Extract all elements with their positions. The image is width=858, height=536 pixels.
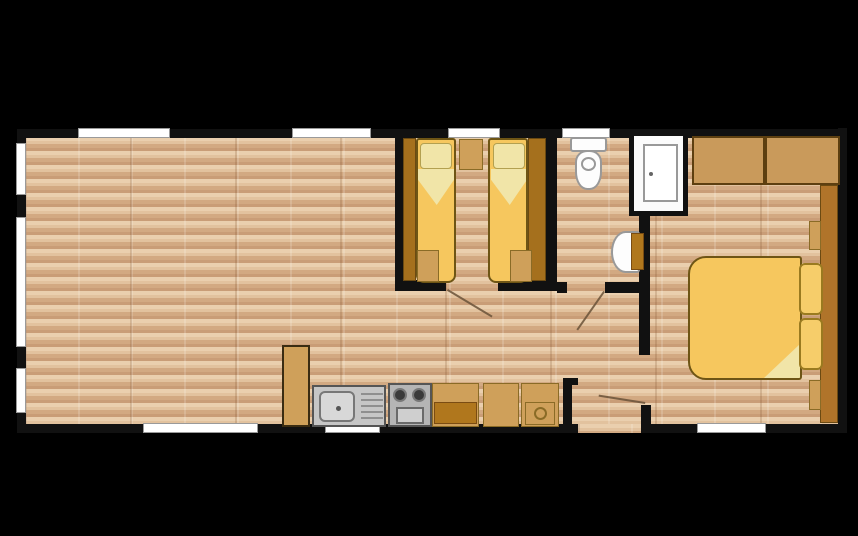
window-left-3 <box>16 368 26 413</box>
kitchen-unit-end-panel <box>525 402 555 425</box>
twin-bed-2-folded-sheet <box>491 169 527 205</box>
sink-drain-hole <box>336 406 341 411</box>
window-lounge-top-1 <box>78 128 170 138</box>
kitchen-unit-plain <box>483 383 519 427</box>
overhead-wardrobe-1 <box>692 136 765 185</box>
floor-plan-canvas <box>0 0 858 536</box>
window-twin-bedroom <box>448 128 500 138</box>
bedside-cabinet <box>459 139 483 170</box>
wall-kitchen-end <box>563 380 572 433</box>
double-bed-duvet <box>688 256 802 380</box>
twin-bed-1-folded-sheet <box>418 169 454 205</box>
twin-bed-1-pillow <box>420 143 452 169</box>
toilet <box>570 137 607 191</box>
twin-bed-2-pillow <box>493 143 525 169</box>
kitchen-unit-end <box>521 383 559 427</box>
wall-twin-shower-divider <box>546 130 557 291</box>
window-double-bedroom <box>697 423 766 433</box>
toilet-seat-detail <box>581 157 596 171</box>
shower-cubicle <box>629 131 688 216</box>
window-lounge-bottom <box>143 423 258 433</box>
cooker <box>388 383 432 427</box>
twin-bed-2-foot-box <box>510 250 532 282</box>
window-left-2 <box>16 217 26 347</box>
shower-door <box>643 144 678 202</box>
double-bed-pillow-top <box>799 263 823 315</box>
bedside-shelf-bottom <box>809 380 821 410</box>
sink-unit <box>312 385 386 427</box>
hob-burner-right <box>412 388 426 402</box>
wall-bedroom-divider-lower <box>641 405 651 433</box>
shower-door-handle <box>649 172 653 176</box>
drainer-ridges <box>361 393 383 421</box>
kitchen-unit-drawer-front <box>434 402 477 424</box>
sink-bowl <box>319 391 355 422</box>
wall-twin-bedroom-left <box>395 130 403 291</box>
tall-larder-unit <box>282 345 310 427</box>
wall-kitchen-end-stub <box>563 378 578 385</box>
twin-bed-1-foot-box <box>417 250 439 282</box>
entrance-door-opening <box>578 424 642 433</box>
wall-shower-room-bottom-stub <box>557 282 567 293</box>
hob-burner-left <box>393 388 407 402</box>
double-bed-fold-corner <box>764 344 800 378</box>
kitchen-unit-end-hob-ring <box>534 407 547 420</box>
oven-door <box>396 407 424 424</box>
window-left-1 <box>16 143 26 195</box>
window-lounge-top-2 <box>292 128 371 138</box>
double-bed-pillow-bottom <box>799 318 823 370</box>
wall-shower-room-bottom-right <box>605 282 643 293</box>
twin-wardrobe-left <box>403 138 416 281</box>
washbasin-vanity <box>631 233 644 270</box>
bedside-shelf-top <box>809 221 821 250</box>
overhead-wardrobe-2 <box>765 136 840 185</box>
kitchen-unit-worktop <box>432 383 479 427</box>
